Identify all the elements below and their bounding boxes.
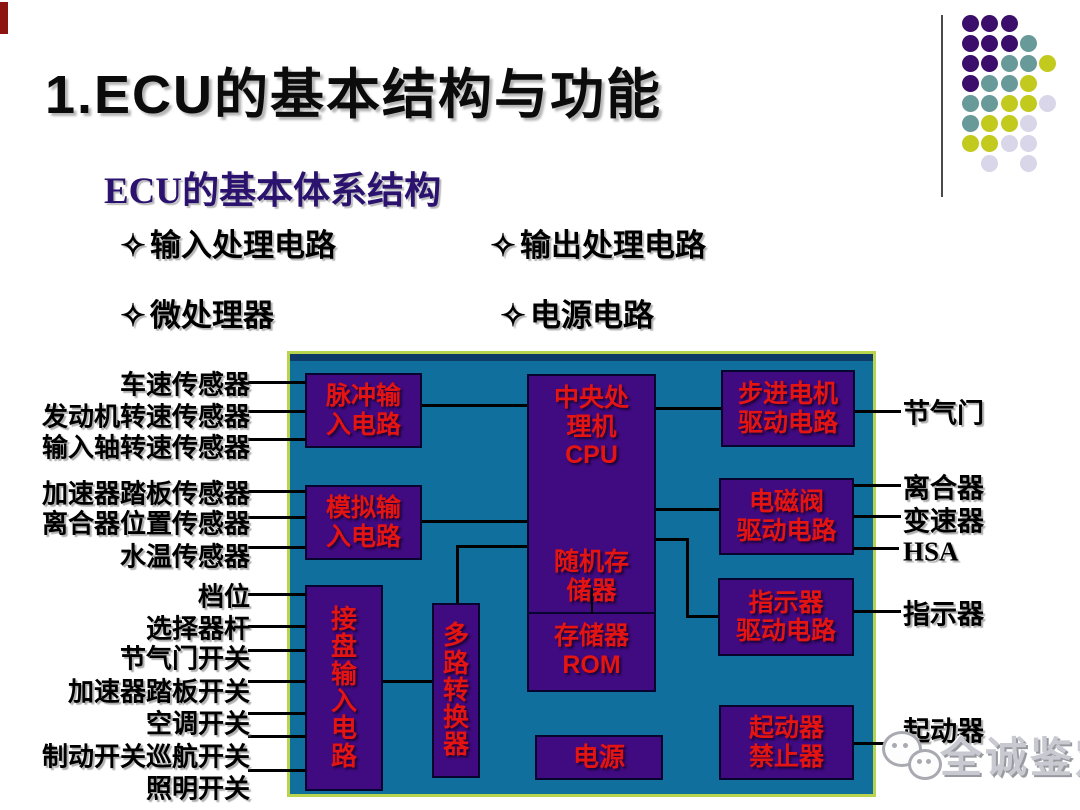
bullet-item: ✧微处理器 — [120, 290, 274, 335]
dot — [1039, 55, 1056, 72]
input-label: 加速器踏板开关 — [68, 672, 250, 709]
dot — [962, 15, 979, 32]
diagram-top-shade — [290, 354, 873, 361]
bullet-label: 电源电路 — [530, 298, 654, 333]
dot — [1001, 15, 1018, 32]
input-label: 水温传感器 — [120, 537, 250, 574]
input-label: 空调开关 — [146, 704, 250, 741]
dot — [962, 115, 979, 132]
output-label: 指示器 — [903, 593, 984, 632]
dot — [962, 95, 979, 112]
dot — [981, 75, 998, 92]
dot — [1020, 75, 1037, 92]
input-label: 选择器杆 — [146, 609, 250, 646]
dot — [1001, 95, 1018, 112]
dot — [1001, 55, 1018, 72]
dot — [962, 35, 979, 52]
watermark: 全诚鉴定 — [882, 724, 1080, 785]
input-label: 车速传感器 — [120, 365, 250, 402]
dot — [1020, 55, 1037, 72]
bullet-item: ✧电源电路 — [500, 290, 654, 335]
bullet-item: ✧输出处理电路 — [490, 220, 706, 265]
chat-bubbles-icon — [882, 727, 940, 783]
input-label: 离合器位置传感器 — [42, 504, 250, 541]
dot — [1001, 115, 1018, 132]
output-label: 离合器 — [903, 467, 984, 506]
dot — [981, 155, 998, 172]
dot — [962, 75, 979, 92]
input-label: 制动开关巡航开关 — [42, 737, 250, 774]
bullet-item: ✧输入处理电路 — [120, 220, 336, 265]
section-heading: ECU的基本体系结构 — [104, 160, 441, 214]
dot — [1020, 35, 1037, 52]
dot — [1001, 35, 1018, 52]
dot — [962, 135, 979, 152]
output-label: 节气门 — [903, 392, 984, 431]
dot — [1020, 135, 1037, 152]
vertical-rule — [941, 15, 943, 197]
dot — [1020, 95, 1037, 112]
watermark-text: 全诚鉴定 — [940, 724, 1080, 785]
chat-bubble-small — [908, 749, 942, 780]
diamond-bullet-icon: ✧ — [120, 298, 146, 333]
dot — [1039, 95, 1056, 112]
dot — [981, 35, 998, 52]
dot — [962, 55, 979, 72]
output-label: 变速器 — [903, 500, 984, 539]
dot — [1001, 135, 1018, 152]
input-label: 节气门开关 — [120, 639, 250, 676]
output-label: HSA — [903, 537, 959, 568]
page-title: 1.ECU的基本结构与功能 — [45, 50, 662, 129]
dot — [981, 15, 998, 32]
bullet-label: 微处理器 — [150, 298, 274, 333]
dot — [1001, 75, 1018, 92]
input-label: 输入轴转速传感器 — [42, 428, 250, 465]
corner-mark — [0, 2, 8, 34]
dot — [1020, 115, 1037, 132]
dot — [1020, 155, 1037, 172]
dot — [981, 135, 998, 152]
bullet-label: 输入处理电路 — [150, 228, 336, 263]
ecu-block-diagram — [287, 351, 876, 797]
input-label: 加速器踏板传感器 — [42, 474, 250, 511]
dot — [981, 95, 998, 112]
input-label: 照明开关 — [146, 769, 250, 806]
dot — [981, 55, 998, 72]
diamond-bullet-icon: ✧ — [490, 228, 516, 263]
input-label: 发动机转速传感器 — [42, 397, 250, 434]
diamond-bullet-icon: ✧ — [120, 228, 146, 263]
bullet-label: 输出处理电路 — [520, 228, 706, 263]
diamond-bullet-icon: ✧ — [500, 298, 526, 333]
dot — [981, 115, 998, 132]
input-label: 档位 — [198, 577, 250, 614]
slide: 1.ECU的基本结构与功能 ECU的基本体系结构 ✧输入处理电路✧输出处理电路✧… — [0, 0, 1080, 810]
